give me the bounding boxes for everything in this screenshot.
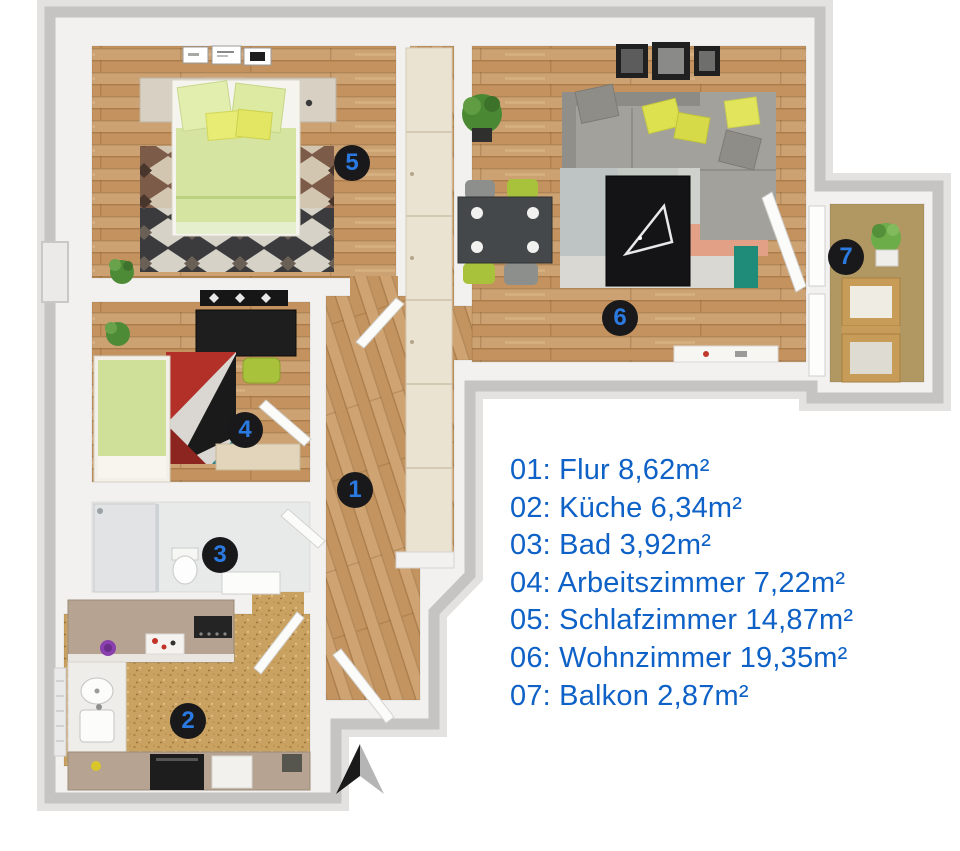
bath-vanity [222, 572, 280, 594]
dining-chair [463, 263, 495, 284]
room-schlafzimmer [109, 46, 336, 284]
legend-item-flur: 01: Flur 8,62m² [510, 452, 853, 490]
pillow [236, 109, 273, 139]
pillow [674, 112, 710, 143]
legend-item-arbeitszimmer: 04: Arbeitszimmer 7,22m² [510, 565, 853, 603]
desk-chair [243, 358, 280, 383]
plant-pot [472, 128, 492, 142]
balcony-window [809, 206, 825, 286]
bedside-lamp [306, 100, 312, 106]
dresser [216, 444, 300, 470]
balcony-window [809, 294, 825, 376]
dining-chair [504, 263, 538, 285]
sideboard [674, 346, 778, 362]
floorplan-drawing [0, 0, 960, 851]
shower [94, 504, 156, 592]
faucet [96, 704, 102, 710]
plant-pot [876, 250, 898, 266]
toilet [173, 556, 197, 584]
desk [196, 310, 296, 356]
bedroom-door-opening [350, 276, 398, 300]
legend-item-wohnzimmer: 06: Wohnzimmer 19,35m² [510, 640, 853, 678]
coffee-table [606, 176, 690, 286]
wall-duct [42, 242, 68, 302]
pillow [724, 97, 759, 128]
dining-chair [465, 180, 495, 199]
bed-duvet [176, 128, 296, 232]
legend-item-balkon: 07: Balkon 2,87m² [510, 678, 853, 716]
legend-item-schlafzimmer: 05: Schlafzimmer 14,87m² [510, 602, 853, 640]
legend-item-bad: 03: Bad 3,92m² [510, 527, 853, 565]
floor-mat [734, 246, 758, 288]
legend-item-kueche: 02: Küche 6,34m² [510, 490, 853, 528]
wall-stub [396, 552, 454, 568]
floorplan-image: 1 2 3 4 5 6 7 01: Flur 8,62m² 02: Küche … [0, 0, 960, 851]
shower-head [97, 508, 103, 514]
legend: 01: Flur 8,62m² 02: Küche 6,34m² 03: Bad… [510, 452, 853, 715]
appliance [212, 756, 252, 788]
dining-table [458, 197, 552, 263]
dining-chair [507, 179, 538, 198]
cutting-board [146, 634, 184, 654]
